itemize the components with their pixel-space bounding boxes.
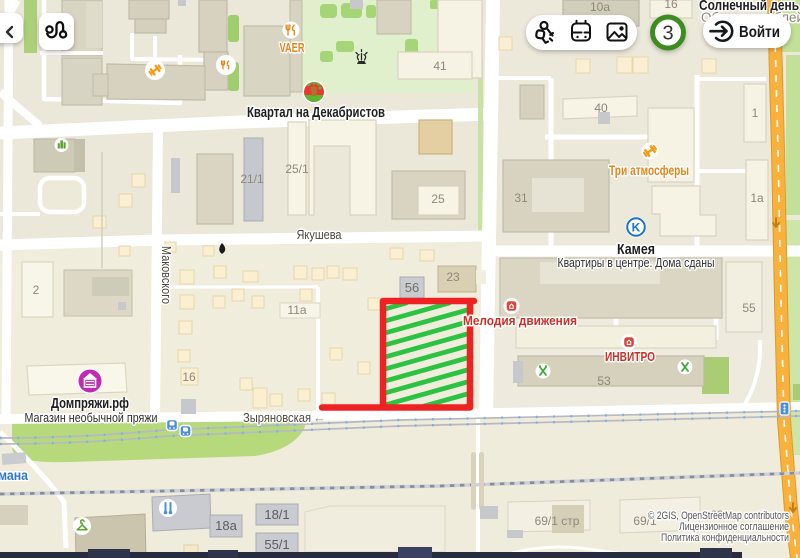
svg-text:Квартиры в центре. Дома сданы: Квартиры в центре. Дома сданы bbox=[558, 255, 715, 270]
svg-text:55: 55 bbox=[742, 301, 756, 315]
svg-text:53: 53 bbox=[597, 374, 611, 388]
svg-text:Политика конфиденциальности: Политика конфиденциальности bbox=[661, 532, 789, 544]
svg-text:Мелодия движения: Мелодия движения bbox=[463, 313, 577, 328]
svg-text:←: ← bbox=[313, 410, 326, 425]
svg-text:3: 3 bbox=[662, 23, 673, 45]
svg-text:мана: мана bbox=[0, 468, 28, 483]
svg-text:Квартал на Декабристов: Квартал на Декабристов bbox=[247, 104, 385, 121]
svg-text:56: 56 bbox=[405, 280, 419, 295]
svg-text:Войти: Войти bbox=[739, 24, 780, 41]
svg-text:25/1: 25/1 bbox=[285, 162, 309, 176]
svg-text:11а: 11а bbox=[287, 303, 306, 317]
svg-text:41: 41 bbox=[433, 59, 447, 73]
svg-text:16: 16 bbox=[182, 370, 196, 384]
svg-text:69/1 стр: 69/1 стр bbox=[535, 514, 580, 528]
svg-text:31: 31 bbox=[514, 191, 528, 205]
svg-text:1: 1 bbox=[752, 106, 759, 120]
svg-text:18а: 18а bbox=[215, 518, 237, 533]
svg-text:VAER: VAER bbox=[280, 40, 305, 55]
svg-text:23: 23 bbox=[446, 270, 460, 284]
svg-text:1а: 1а bbox=[750, 191, 764, 205]
svg-text:16: 16 bbox=[664, 0, 678, 11]
svg-text:Якушева: Якушева bbox=[297, 227, 343, 242]
svg-text:55/1: 55/1 bbox=[264, 537, 289, 552]
svg-text:ИНВИТРО: ИНВИТРО bbox=[605, 349, 655, 364]
svg-text:Три атмосферы: Три атмосферы bbox=[609, 163, 689, 178]
svg-text:21/1: 21/1 bbox=[240, 172, 264, 186]
svg-text:Магазин необычной пряжи: Магазин необычной пряжи bbox=[25, 410, 158, 425]
svg-text:18/1: 18/1 bbox=[264, 507, 289, 522]
svg-text:Маковского: Маковского bbox=[159, 246, 174, 304]
svg-text:Зыряновская: Зыряновская bbox=[243, 410, 311, 425]
svg-text:10а: 10а bbox=[590, 0, 610, 14]
svg-text:2: 2 bbox=[33, 283, 40, 297]
svg-text:K: K bbox=[632, 221, 641, 235]
svg-text:25: 25 bbox=[431, 192, 445, 206]
